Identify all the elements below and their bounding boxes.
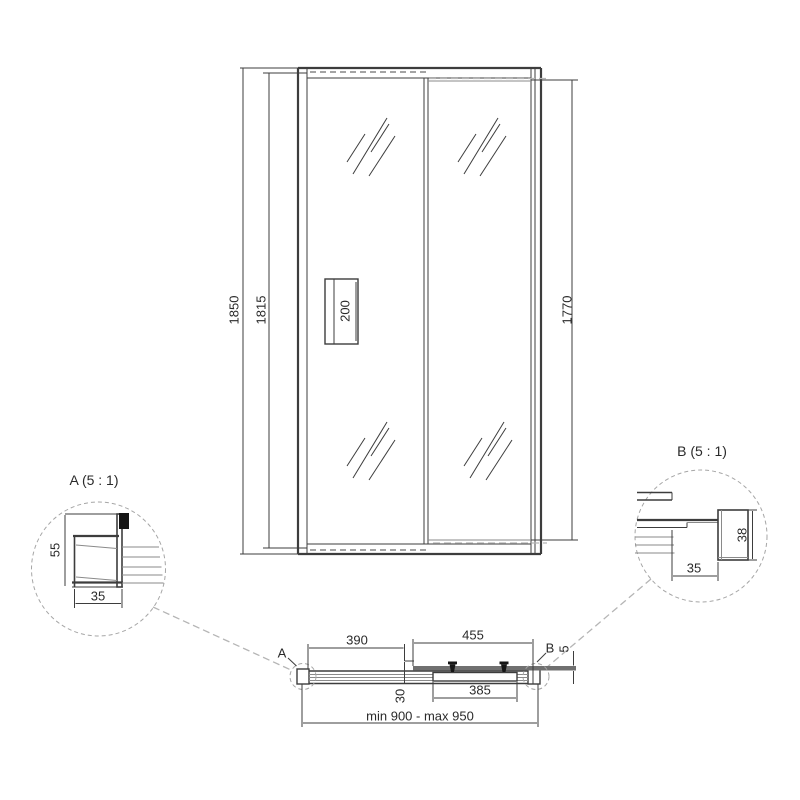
dim-glass-thickness-label: 5 [558, 645, 571, 652]
front-view-drawing [240, 68, 578, 554]
technical-drawing-page: 1850 1815 1770 200 A (5 : 1) 55 35 B (5 … [0, 0, 800, 800]
detail-b-height-label: 38 [736, 528, 749, 542]
dim-glass-height-label: 1770 [561, 296, 574, 325]
detail-a-height-label: 55 [49, 543, 62, 557]
dim-opening-label: 390 [346, 634, 368, 647]
detail-b-drawing [546, 470, 767, 668]
dim-overlap-label: 30 [394, 689, 407, 703]
glass-hatch [347, 118, 512, 480]
sliding-door-bar [433, 673, 517, 682]
detail-a-drawing [32, 502, 292, 670]
detail-a-title: A (5 : 1) [69, 473, 118, 487]
detail-b-title: B (5 : 1) [677, 444, 727, 458]
detail-a-width-label: 35 [91, 590, 105, 603]
left-end-cap [297, 669, 309, 684]
dim-width-range-label: min 900 - max 950 [366, 710, 474, 723]
dim-fixed-panel-label: 455 [462, 629, 484, 642]
right-end-cap [528, 669, 540, 684]
drawing-linework [0, 0, 800, 800]
detail-b-width-label: 35 [687, 562, 701, 575]
detail-marker-b: B [546, 642, 555, 655]
fixed-panel-bar [413, 666, 576, 671]
dim-door-width-label: 385 [469, 684, 491, 697]
dim-total-height-label: 1850 [228, 296, 241, 325]
dim-handle-label: 200 [339, 300, 352, 322]
dim-door-height-label: 1815 [255, 296, 268, 325]
front-view-dimensions [240, 68, 578, 554]
detail-marker-a: A [278, 647, 287, 660]
